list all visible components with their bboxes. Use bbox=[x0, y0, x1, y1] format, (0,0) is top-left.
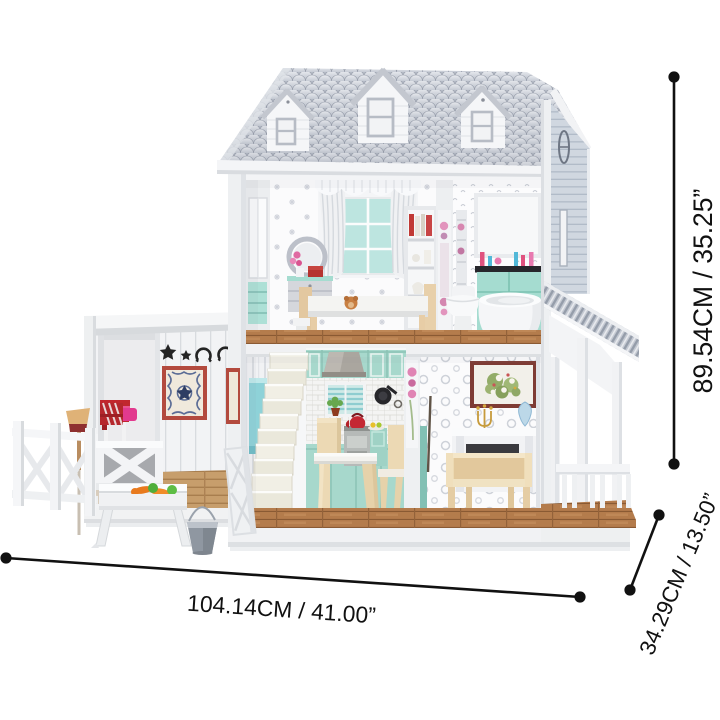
svg-text:89.54CM / 35.25”: 89.54CM / 35.25” bbox=[688, 189, 718, 394]
